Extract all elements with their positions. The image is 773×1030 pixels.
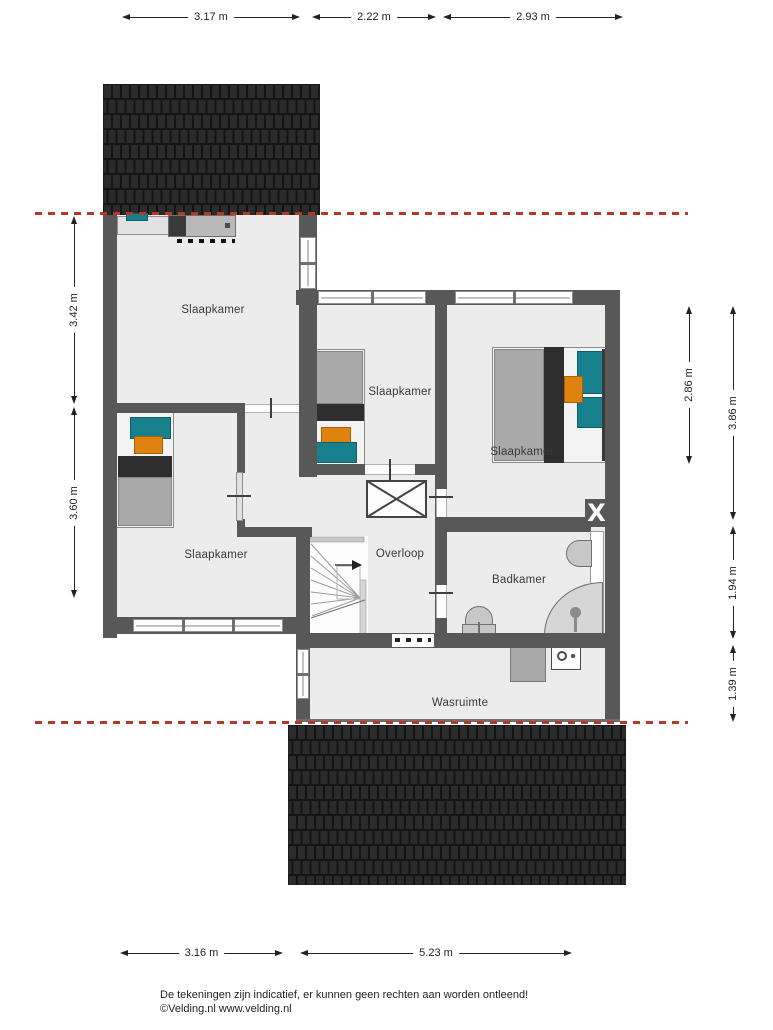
door-tick bbox=[389, 459, 391, 480]
door-tick bbox=[227, 495, 251, 497]
arrowhead-right-icon bbox=[275, 950, 283, 956]
shower-drain-stem bbox=[574, 616, 577, 632]
door-tick bbox=[270, 398, 272, 418]
window-mullion bbox=[371, 291, 374, 304]
room-label-overloop: Overloop bbox=[376, 548, 424, 560]
arrowhead-up-icon bbox=[71, 216, 77, 224]
arrowhead-right-icon bbox=[615, 14, 623, 20]
window-bottomleft-bedroom bbox=[133, 619, 283, 632]
arrowhead-right-icon bbox=[564, 950, 572, 956]
window-wasruimte-west bbox=[297, 649, 309, 699]
roof-top bbox=[103, 84, 320, 215]
washing-machine-knob bbox=[571, 654, 575, 658]
window-mullion bbox=[300, 262, 316, 265]
dimension-label: 3.17 m bbox=[188, 11, 234, 23]
dimension-label: 2.22 m bbox=[351, 11, 397, 23]
arrowhead-left-icon bbox=[122, 14, 130, 20]
disclaimer-line1: De tekeningen zijn indicatief, er kunnen… bbox=[160, 988, 528, 1002]
room-label-slaapkamer-topleft: Slaapkamer bbox=[181, 304, 244, 316]
room-label-wasruimte: Wasruimte bbox=[432, 697, 488, 709]
sink bbox=[566, 540, 592, 567]
arrowhead-down-icon bbox=[730, 631, 736, 639]
arrowhead-down-icon bbox=[730, 714, 736, 722]
dimension-left-2: 3.60 m bbox=[67, 407, 81, 598]
window-mullion bbox=[513, 291, 516, 304]
window-mullion bbox=[232, 619, 235, 632]
dimension-label: 5.23 m bbox=[413, 947, 459, 959]
arrowhead-up-icon bbox=[730, 645, 736, 653]
laundry-cabinet bbox=[510, 646, 546, 682]
washing-machine-drum bbox=[557, 651, 567, 661]
wall-left-exterior bbox=[103, 215, 117, 638]
dimension-right-3: 1.94 m bbox=[726, 526, 740, 639]
arrowhead-down-icon bbox=[686, 456, 692, 464]
window-middle-bedroom bbox=[318, 291, 426, 304]
dimension-label: 3.16 m bbox=[179, 947, 225, 959]
dimension-label: 1.39 m bbox=[726, 661, 740, 707]
dimension-right-1: 2.86 m bbox=[682, 306, 696, 464]
window-right-bedroom bbox=[455, 291, 573, 304]
floorplan-canvas: X Slaapkamer Slaapkamer Slaapkamer Slaap… bbox=[0, 0, 773, 1030]
wall-middle-bedroom-bottom-a bbox=[299, 464, 367, 475]
door-tick bbox=[429, 496, 453, 498]
flue-x-symbol: X bbox=[585, 499, 608, 527]
door-opening-wasruimte bbox=[392, 634, 434, 647]
arrowhead-down-icon bbox=[71, 590, 77, 598]
arrowhead-down-icon bbox=[71, 396, 77, 404]
door-opening-badkamer bbox=[436, 585, 447, 618]
disclaimer-line2: ©Velding.nl www.velding.nl bbox=[160, 1002, 528, 1016]
room-label-slaapkamer-right: Slaapkamer bbox=[490, 446, 553, 458]
wall-stairwell-left bbox=[296, 527, 310, 637]
room-label-slaapkamer-middle: Slaapkamer bbox=[368, 386, 431, 398]
section-line-top bbox=[35, 212, 688, 215]
dimension-label: 3.60 m bbox=[67, 480, 81, 526]
arrowhead-down-icon bbox=[730, 512, 736, 520]
wall-wasruimte-top bbox=[296, 633, 620, 648]
arrowhead-up-icon bbox=[730, 526, 736, 534]
arrowhead-left-icon bbox=[300, 950, 308, 956]
bed-right-pillow-orange bbox=[564, 376, 583, 403]
door-opening-topleft-bedroom bbox=[245, 404, 299, 413]
void-shaft bbox=[366, 480, 427, 518]
wardrobe-hanging-rail bbox=[177, 239, 235, 243]
dimension-right-2: 3.86 m bbox=[726, 306, 740, 520]
arrowhead-up-icon bbox=[686, 306, 692, 314]
arrowhead-up-icon bbox=[71, 407, 77, 415]
disclaimer: De tekeningen zijn indicatief, er kunnen… bbox=[160, 988, 528, 1016]
dimension-right-4: 1.39 m bbox=[726, 645, 740, 722]
wall-bedrooms-divider bbox=[103, 403, 245, 413]
dimension-label: 3.86 m bbox=[726, 390, 740, 436]
room-label-slaapkamer-bottomleft: Slaapkamer bbox=[184, 549, 247, 561]
bed-middle-darkband bbox=[311, 404, 364, 421]
window-pane bbox=[136, 625, 280, 627]
dimension-label: 1.94 m bbox=[726, 560, 740, 606]
wardrobe-dark-section bbox=[169, 216, 186, 236]
arrowhead-up-icon bbox=[730, 306, 736, 314]
arrowhead-right-icon bbox=[292, 14, 300, 20]
dimension-bottom-1: 3.16 m bbox=[120, 946, 283, 960]
arrowhead-left-icon bbox=[120, 950, 128, 956]
room-label-badkamer: Badkamer bbox=[492, 574, 546, 586]
bed-middle-pillow-teal bbox=[315, 442, 357, 463]
door-threshold-dashes bbox=[395, 638, 431, 642]
wall-badkamer-top bbox=[441, 517, 591, 532]
bed-left-darkband bbox=[118, 456, 172, 477]
dimension-bottom-2: 5.23 m bbox=[300, 946, 572, 960]
bed-right-blanket bbox=[494, 349, 544, 461]
dimension-left-1: 3.42 m bbox=[67, 216, 81, 404]
dimension-top-1: 3.17 m bbox=[122, 10, 300, 24]
dimension-label: 3.42 m bbox=[67, 287, 81, 333]
door-tick bbox=[429, 592, 453, 594]
window-topleft-east bbox=[300, 237, 316, 289]
dimension-top-3: 2.93 m bbox=[443, 10, 623, 24]
dimension-label: 2.86 m bbox=[682, 362, 696, 408]
arrowhead-left-icon bbox=[443, 14, 451, 20]
roof-bottom bbox=[288, 725, 626, 885]
bed-left-blanket bbox=[118, 477, 172, 526]
arrowhead-right-icon bbox=[428, 14, 436, 20]
bed-middle-blanket bbox=[311, 351, 363, 404]
dimension-label: 2.93 m bbox=[510, 11, 556, 23]
wall-bedroom-left-side bbox=[237, 403, 245, 473]
section-line-bottom bbox=[35, 721, 688, 724]
dimension-top-2: 2.22 m bbox=[312, 10, 436, 24]
toilet-flush-mark bbox=[478, 622, 480, 633]
stairs bbox=[309, 536, 369, 640]
window-mullion bbox=[182, 619, 185, 632]
door-opening-right-bedroom bbox=[436, 489, 447, 517]
wardrobe-knob bbox=[225, 223, 230, 228]
window-mullion bbox=[297, 673, 309, 676]
arrowhead-left-icon bbox=[312, 14, 320, 20]
bed-left-pillow-orange bbox=[134, 436, 163, 454]
